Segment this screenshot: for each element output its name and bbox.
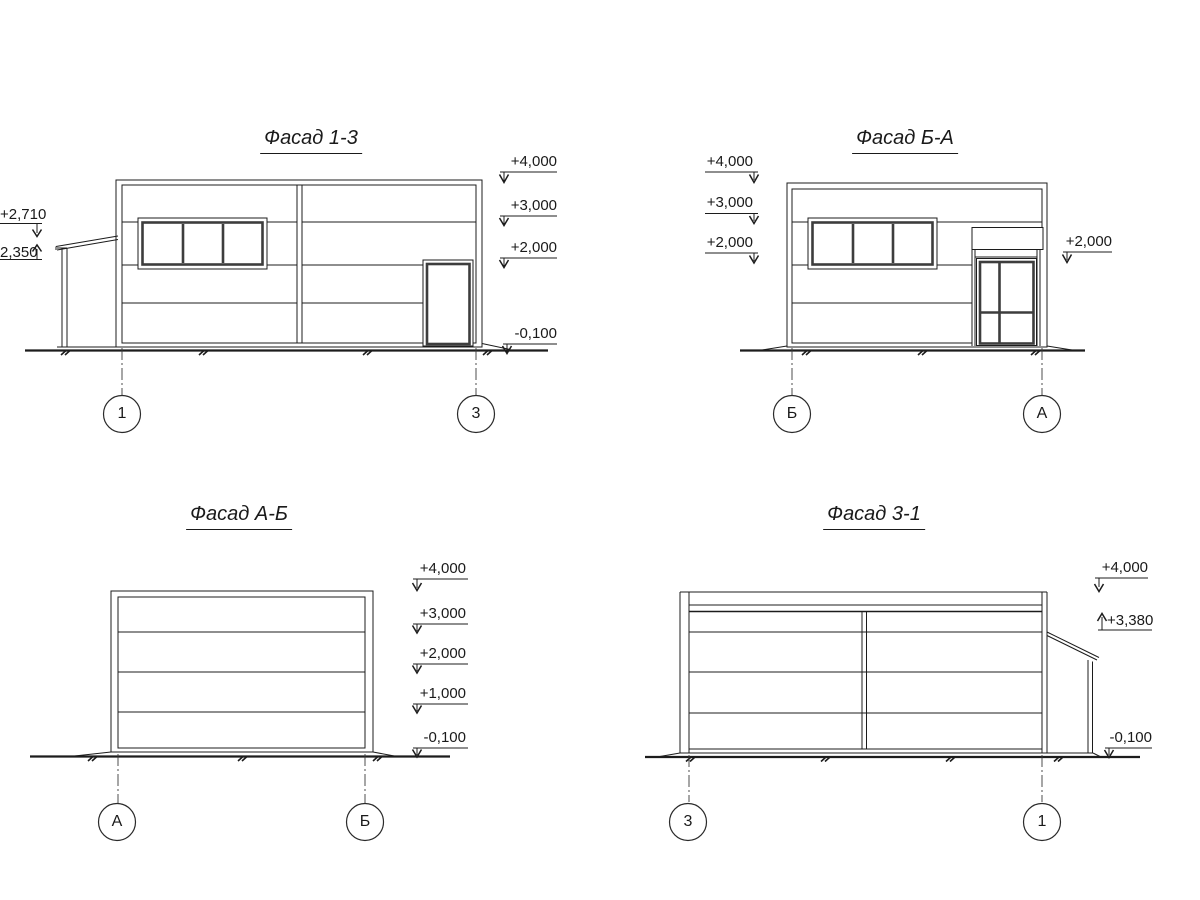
facade-a-b-title: Фасад А-Б	[186, 503, 292, 530]
facade-1-3-grid-axes	[104, 348, 495, 433]
facade-a-b-grid-axes	[99, 754, 384, 841]
facade-3-1-building	[680, 592, 1093, 753]
facade-b-a-entrance	[972, 228, 1043, 347]
grid-axis-label: Б	[345, 812, 385, 832]
elevation-drawing-sheet: Фасад 1-3 Фасад Б-А Фасад А-Б Фасад 3-1 …	[0, 0, 1200, 900]
elevation-label: +3,380	[1107, 612, 1153, 629]
elevation-label: -0,100	[1082, 729, 1152, 746]
elevation-label: 2,350	[0, 244, 38, 261]
elevation-label: +3,000	[683, 194, 753, 211]
facade-b-a-title: Фасад Б-А	[852, 127, 958, 154]
facade-3-1-title: Фасад 3-1	[823, 503, 925, 530]
elevation-label: +2,710	[0, 206, 46, 223]
facade-a-b-building	[111, 591, 373, 752]
elevation-label: +2,000	[1042, 233, 1112, 250]
grid-axis-label: 1	[102, 404, 142, 424]
grid-axis-label: Б	[772, 404, 812, 424]
elevation-label: +3,000	[487, 197, 557, 214]
elevation-label: -0,100	[396, 729, 466, 746]
drawing-linework	[0, 0, 1200, 900]
facade-1-3-annex	[56, 236, 118, 347]
facade-b-a-grid-axes	[774, 348, 1061, 433]
elevation-label: +4,000	[1078, 559, 1148, 576]
elevation-label: +4,000	[487, 153, 557, 170]
facade-1-3-ribbon-window	[138, 218, 267, 269]
elevation-label: +2,000	[396, 645, 466, 662]
grid-axis-label: 3	[668, 812, 708, 832]
facade-a-b-ground-line	[30, 752, 450, 761]
elevation-label: -0,100	[487, 325, 557, 342]
facade-b-a-ribbon-window	[808, 218, 937, 269]
facade-3-1-ground-line	[645, 753, 1140, 762]
facade-1-3-door	[423, 260, 473, 346]
grid-axis-label: А	[1022, 404, 1062, 424]
elevation-label: +2,000	[487, 239, 557, 256]
elevation-label: +4,000	[396, 560, 466, 577]
elevation-label: +2,000	[683, 234, 753, 251]
elevation-label: +3,000	[396, 605, 466, 622]
facade-3-1-grid-axes	[670, 755, 1061, 841]
facade-1-3-title: Фасад 1-3	[260, 127, 362, 154]
elevation-label: +4,000	[683, 153, 753, 170]
grid-axis-label: 3	[456, 404, 496, 424]
grid-axis-label: А	[97, 812, 137, 832]
elevation-label: +1,000	[396, 685, 466, 702]
grid-axis-label: 1	[1022, 812, 1062, 832]
